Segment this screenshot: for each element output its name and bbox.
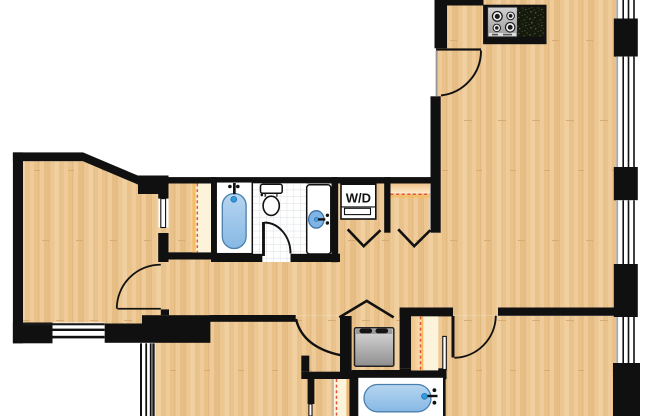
svg-text:W/D: W/D — [346, 191, 371, 206]
